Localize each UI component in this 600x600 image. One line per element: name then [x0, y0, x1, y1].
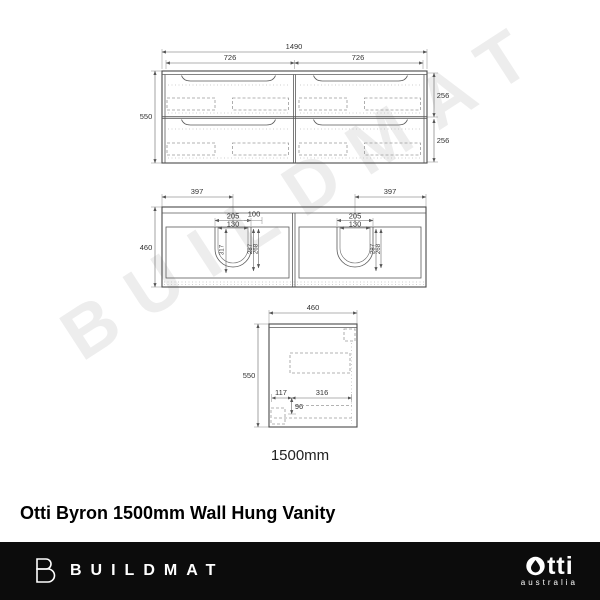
left-basin: 205 130 100 317 287 268 [215, 210, 262, 274]
dim-back: 117 [275, 388, 287, 397]
dim-left-tap-offset: 100 [248, 210, 261, 219]
product-title: Otti Byron 1500mm Wall Hung Vanity [20, 503, 335, 524]
dim-left-basin-offset: 397 [191, 187, 204, 196]
otti-sub-label: australia [521, 578, 578, 587]
drawer-bottom-left [167, 120, 289, 159]
front-view-drawing: 1490 726 726 550 256 256 [138, 36, 450, 178]
scale-label: 1500mm [240, 447, 360, 464]
footer-bar: BUILDMAT tti australia [0, 542, 600, 600]
dim-mid: 316 [316, 388, 329, 397]
otti-logo: tti australia [521, 555, 578, 587]
dim-right-basin-offset: 397 [384, 187, 397, 196]
dim-top-drawer-height: 256 [437, 91, 450, 100]
dim-bottom-drawer-height: 256 [437, 136, 450, 145]
dim-right-drawer-width: 726 [352, 53, 365, 62]
spec-sheet-page: BUILDMAT 1490 726 726 550 256 256 [0, 0, 600, 600]
plan-view-drawing: 397 397 460 205 130 100 317 28 [138, 183, 450, 293]
drawer-top-left [167, 76, 289, 114]
dim-side-height: 550 [243, 371, 256, 380]
dim-right-waste-width: 130 [349, 220, 362, 229]
dim-left-basin-depth: 317 [219, 244, 226, 255]
drawer-bottom-right [299, 120, 421, 159]
buildmat-logo: BUILDMAT [30, 556, 224, 586]
dim-total-width: 1490 [286, 42, 303, 51]
dim-front-height: 550 [140, 112, 153, 121]
dim-side-depth: 460 [307, 303, 320, 312]
dim-plan-depth: 460 [140, 243, 153, 252]
side-view-drawing: 460 550 117 316 96 [238, 298, 378, 443]
right-basin: 205 130 287 268 [337, 212, 382, 272]
dim-right-b: 268 [375, 243, 382, 254]
drawer-top-right [299, 76, 421, 114]
dim-drop: 96 [295, 402, 303, 411]
otti-wordmark: tti [547, 556, 574, 576]
hidden-cavity [290, 353, 350, 373]
plan-outline [162, 207, 426, 287]
dim-left-drawer-width: 726 [224, 53, 237, 62]
buildmat-logo-icon [30, 556, 58, 586]
buildmat-wordmark: BUILDMAT [70, 562, 224, 580]
dim-left-b: 268 [253, 243, 260, 254]
otti-drop-icon [525, 555, 546, 576]
dim-left-waste-width: 130 [227, 220, 240, 229]
